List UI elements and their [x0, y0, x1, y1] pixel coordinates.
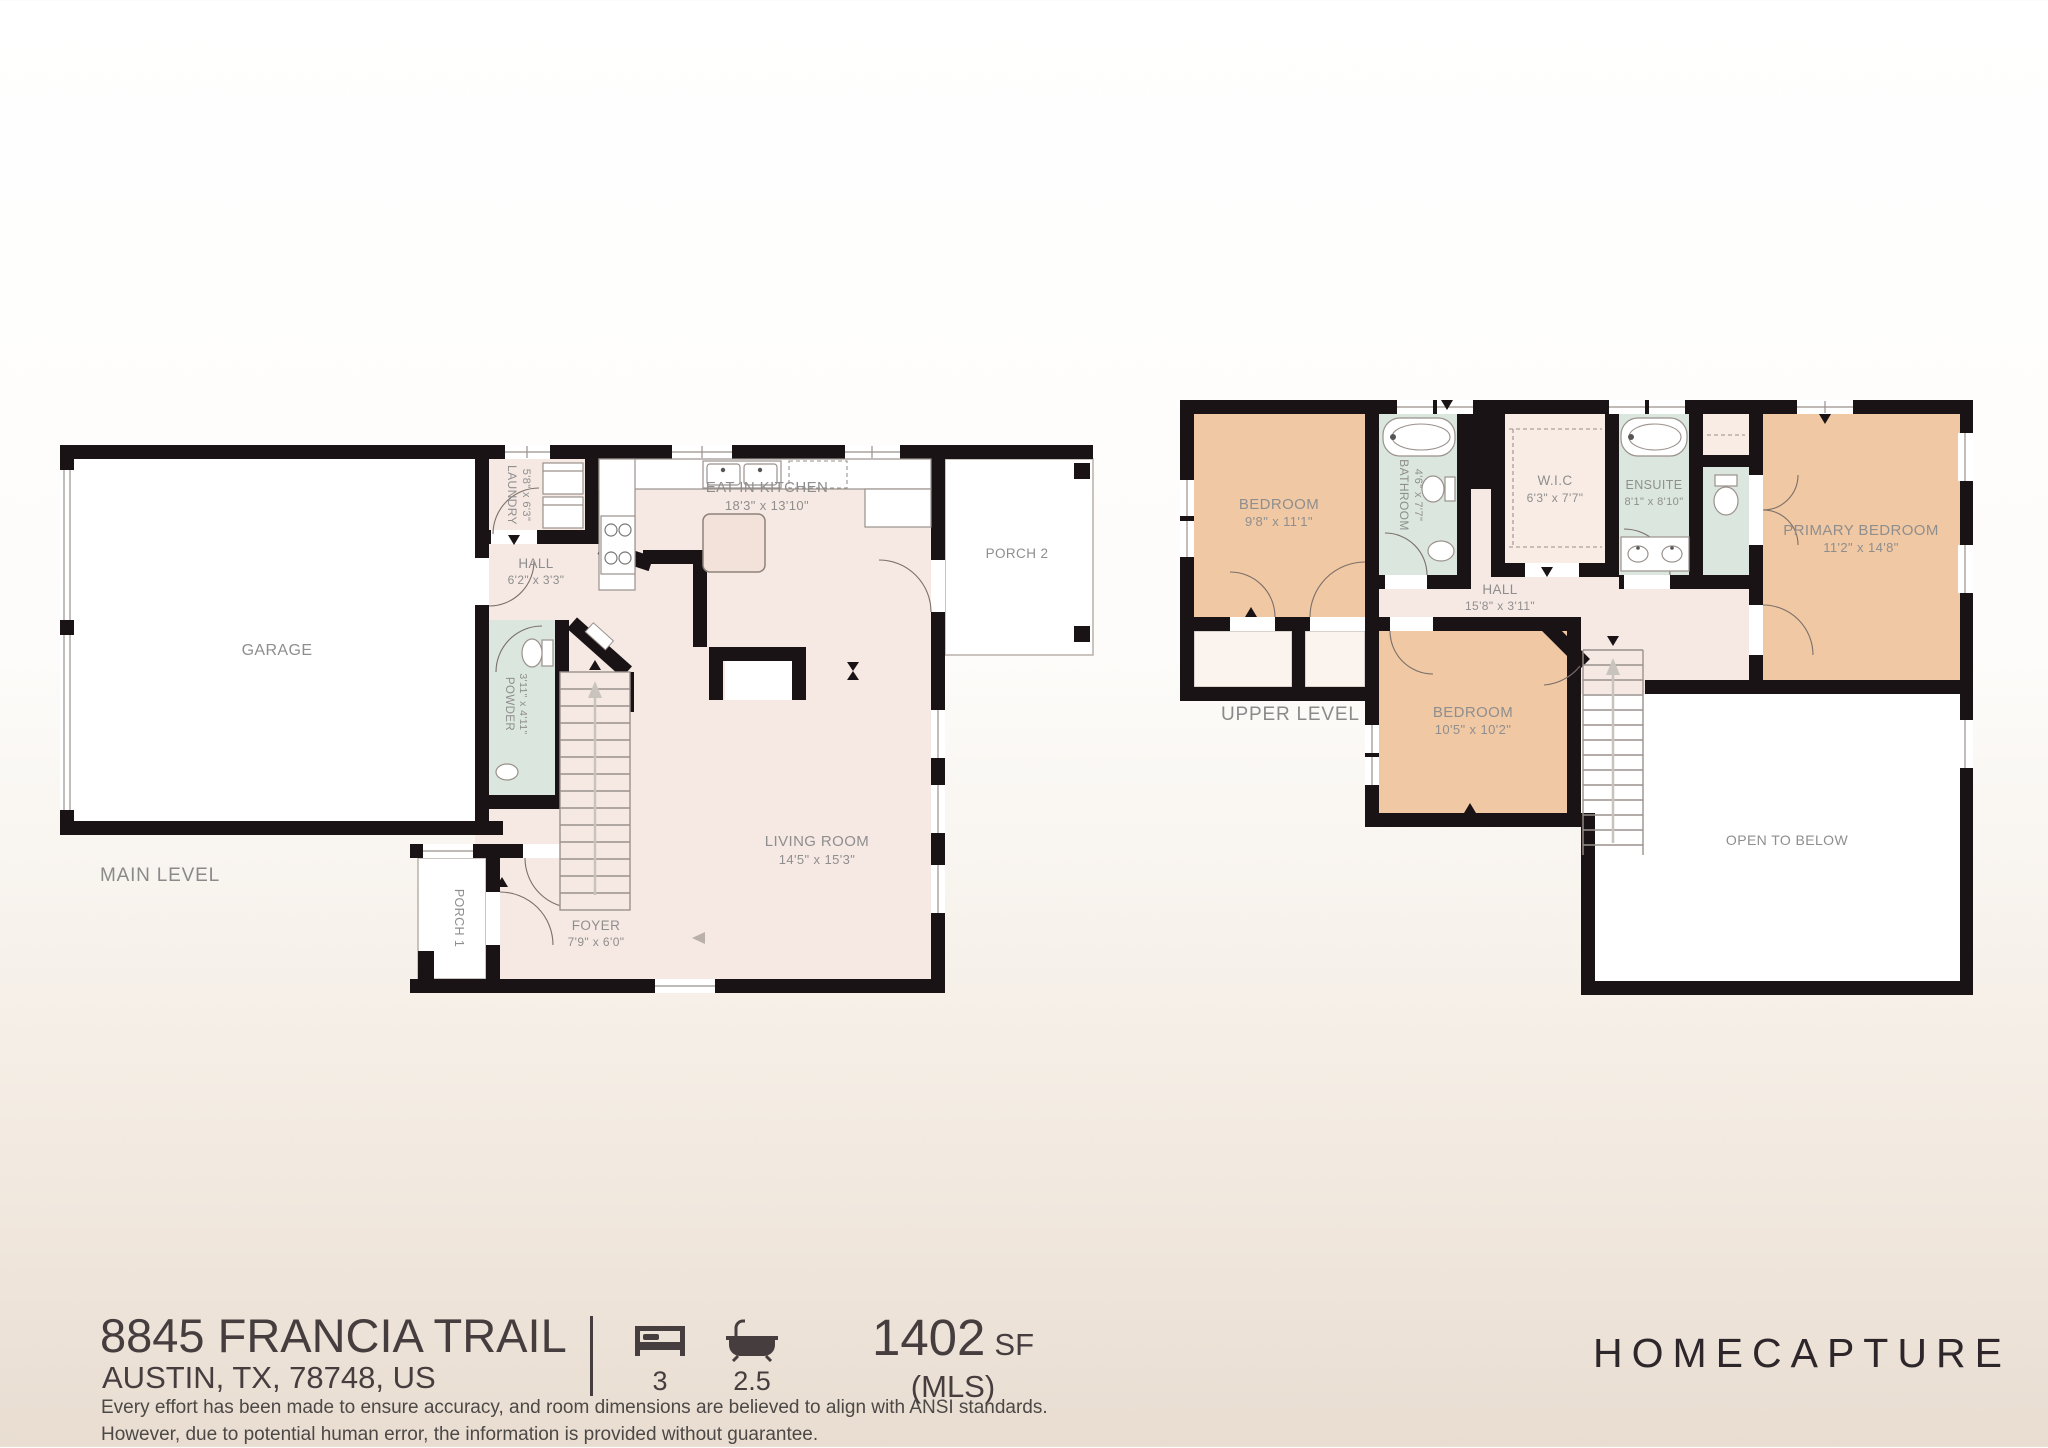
- disclaimer-line2: However, due to potential human error, t…: [101, 1421, 1048, 1448]
- toilet: [542, 640, 553, 666]
- bath-icon: [724, 1316, 780, 1362]
- upper-level-floorplan: BEDROOM 9'8" x 11'1" BATHROOM 4'6" x 7'7…: [1175, 395, 1975, 1015]
- living-label: LIVING ROOM: [765, 833, 869, 850]
- baths-count: 2.5: [722, 1366, 782, 1397]
- bedroom2-label: BEDROOM: [1433, 704, 1513, 721]
- laundry-label: LAUNDRY: [505, 465, 519, 525]
- sink: [1428, 541, 1454, 561]
- ensuite-dims: 8'1" x 8'10": [1624, 496, 1683, 508]
- primary-label: PRIMARY BEDROOM: [1783, 522, 1938, 539]
- porch1-label: PORCH 1: [452, 889, 466, 947]
- main-level-label: MAIN LEVEL: [100, 865, 220, 886]
- foyer-label: FOYER: [572, 918, 621, 933]
- stove: [601, 516, 635, 574]
- wc-toilet: [1715, 475, 1737, 486]
- living-dims: 14'5" x 15'3": [779, 852, 856, 867]
- area-value: 1402: [872, 1308, 985, 1367]
- hall-dims: 6'2" x 3'3": [508, 573, 565, 587]
- disclaimer-line1: Every effort has been made to ensure acc…: [101, 1394, 1048, 1421]
- address-line1: 8845 FRANCIA TRAIL: [100, 1308, 567, 1363]
- upper-hall-dims: 15'8" x 3'11": [1465, 599, 1535, 613]
- upper-hall-label: HALL: [1482, 582, 1517, 597]
- brand-logo: HOMECAPTURE: [1593, 1330, 2011, 1377]
- bathroom-label: BATHROOM: [1397, 459, 1411, 531]
- foyer-dims: 7'9" x 6'0": [568, 935, 625, 949]
- beds-count: 3: [630, 1366, 690, 1397]
- wic-label: W.I.C: [1538, 473, 1573, 488]
- footer-divider: [590, 1316, 593, 1396]
- main-level-floorplan: GARAGE MAIN LEVEL LAUNDRY 5'8" x 6'3" HA…: [55, 440, 1095, 1015]
- sink: [496, 764, 518, 780]
- wic-dims: 6'3" x 7'7": [1527, 491, 1584, 505]
- laundry-dims: 5'8" x 6'3": [520, 469, 532, 522]
- bedroom1-label: BEDROOM: [1239, 496, 1319, 513]
- open-below-label: OPEN TO BELOW: [1726, 832, 1849, 848]
- address-line2: AUSTIN, TX, 78748, US: [102, 1360, 436, 1396]
- primary-dims: 11'2" x 14'8": [1823, 540, 1899, 555]
- garage-floor: [74, 459, 475, 821]
- disclaimer: Every effort has been made to ensure acc…: [101, 1394, 1048, 1448]
- kitchen-label: EAT IN KITCHEN: [706, 479, 829, 496]
- upper-level-label: UPPER LEVEL: [1221, 704, 1360, 725]
- area-block: 1402 SF (MLS): [858, 1308, 1048, 1405]
- wic-floor: [1505, 414, 1605, 563]
- kitchen-island: [703, 514, 765, 572]
- area-unit: SF: [994, 1327, 1034, 1363]
- hall-label: HALL: [518, 556, 553, 571]
- garage-label: GARAGE: [242, 642, 313, 659]
- stairs: [560, 672, 630, 910]
- baths-stat: [722, 1316, 782, 1367]
- media-niche: [725, 661, 792, 700]
- ensuite-label: ENSUITE: [1626, 478, 1683, 492]
- kitchen-dims: 18'3" x 13'10": [725, 498, 809, 513]
- toilet: [1445, 477, 1455, 501]
- bedroom2-dims: 10'5" x 10'2": [1435, 722, 1512, 737]
- bathroom-dims: 4'6" x 7'7": [1412, 469, 1424, 522]
- beds-stat: [630, 1318, 690, 1365]
- bed-icon: [632, 1318, 688, 1360]
- bedroom1-dims: 9'8" x 11'1": [1245, 514, 1313, 529]
- closet-a: [1194, 631, 1292, 687]
- powder-label: POWDER: [503, 677, 515, 731]
- closet-b: [1305, 631, 1365, 687]
- powder-dims: 3'11" x 4'11": [517, 673, 529, 734]
- porch2-label: PORCH 2: [986, 546, 1049, 561]
